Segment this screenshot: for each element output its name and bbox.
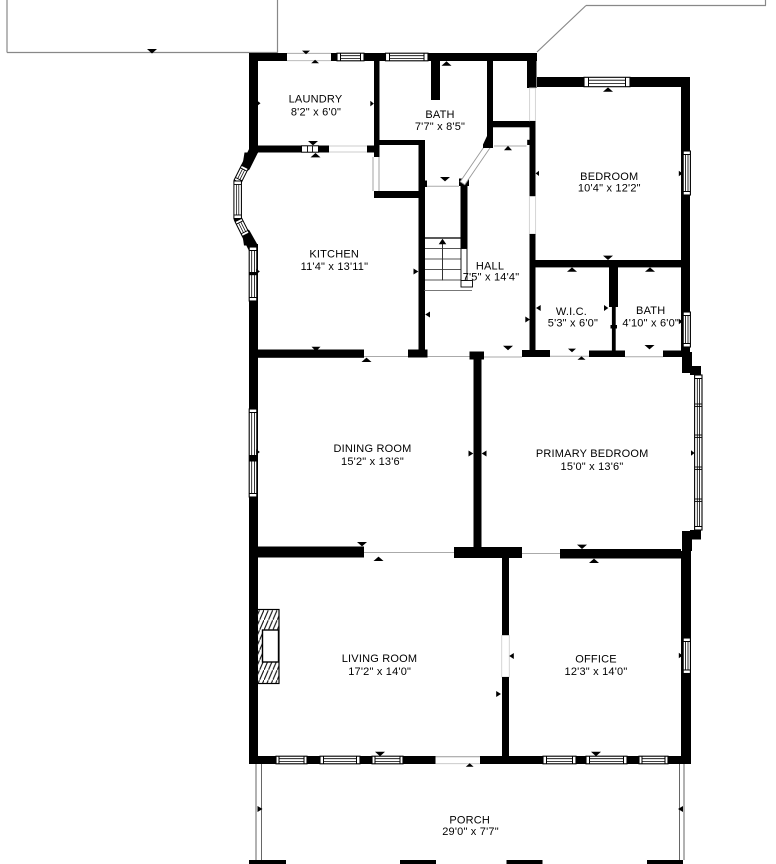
svg-text:KITCHEN: KITCHEN [309,249,359,261]
svg-text:4'10" x 6'0": 4'10" x 6'0" [622,318,679,330]
svg-text:BEDROOM: BEDROOM [580,171,638,183]
svg-text:5'3" x 6'0": 5'3" x 6'0" [548,318,598,330]
svg-text:PORCH: PORCH [449,815,490,827]
svg-text:PRIMARY BEDROOM: PRIMARY BEDROOM [536,448,649,460]
svg-text:12'3" x 14'0": 12'3" x 14'0" [565,666,628,678]
svg-text:7'5" x 14'4": 7'5" x 14'4" [463,271,520,283]
svg-text:17'2" x 14'0": 17'2" x 14'0" [348,666,411,678]
svg-text:8'2" x 6'0": 8'2" x 6'0" [291,107,341,119]
svg-text:10'4" x 12'2": 10'4" x 12'2" [578,183,641,195]
svg-text:BATH: BATH [636,305,665,317]
svg-text:LAUNDRY: LAUNDRY [289,94,343,106]
svg-text:7'7" x 8'5": 7'7" x 8'5" [415,121,465,133]
svg-text:W.I.C.: W.I.C. [556,306,587,318]
svg-text:11'4" x 13'11": 11'4" x 13'11" [301,261,369,273]
svg-text:BATH: BATH [425,109,454,121]
svg-text:LIVING ROOM: LIVING ROOM [342,653,418,665]
svg-text:OFFICE: OFFICE [575,654,617,666]
svg-text:15'0" x 13'6": 15'0" x 13'6" [561,461,624,473]
svg-text:DINING ROOM: DINING ROOM [334,443,412,455]
svg-text:15'2" x 13'6": 15'2" x 13'6" [341,456,404,468]
svg-text:29'0" x 7'7": 29'0" x 7'7" [442,826,499,838]
